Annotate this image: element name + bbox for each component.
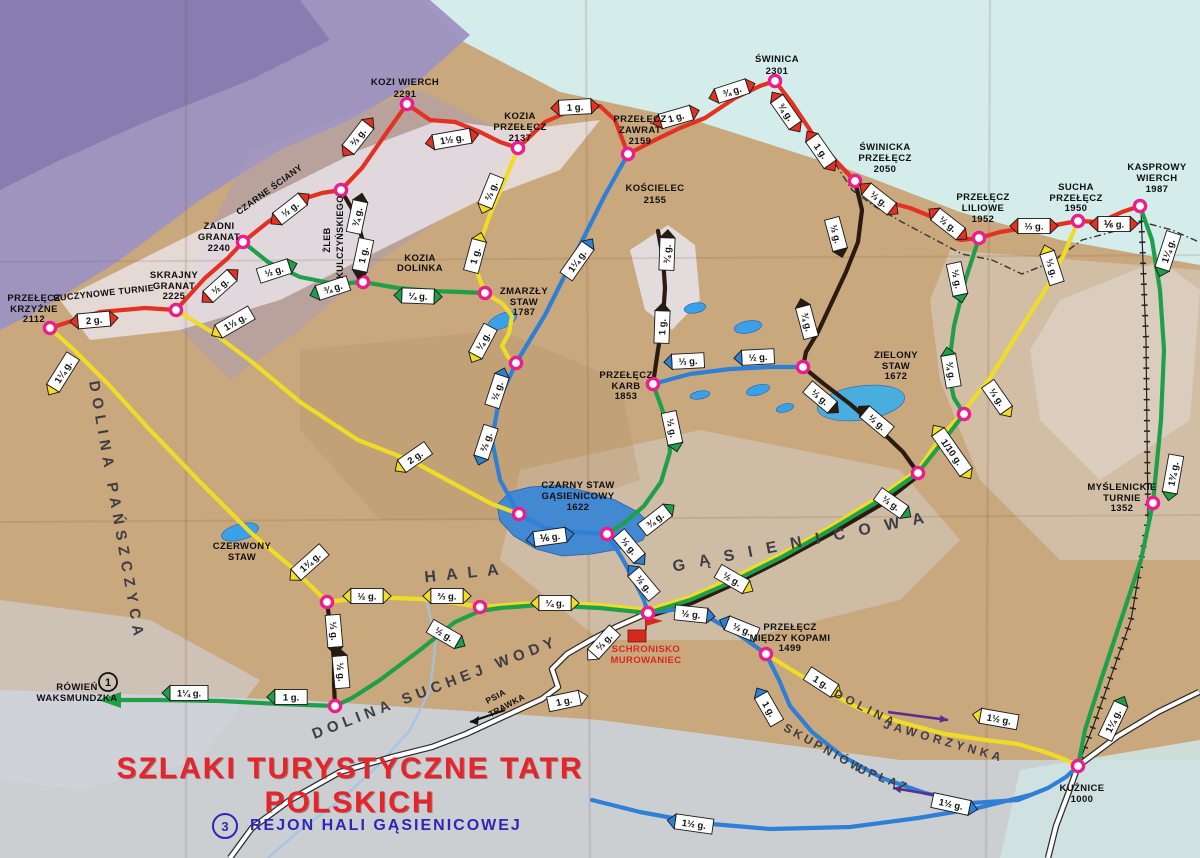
place-label: PRZEŁĘCZ (599, 370, 652, 381)
place-label: 2137 (509, 133, 532, 144)
trail-junction-node (1072, 760, 1083, 771)
marker-time-label: ¾ g. (662, 244, 674, 263)
place-label: 1952 (972, 214, 995, 225)
place-label: WIERCH (1137, 173, 1178, 184)
trail-junction-node (1147, 497, 1158, 508)
place-label: CZERWONY (213, 541, 272, 552)
place-label: STAW (228, 552, 256, 563)
place-label: PRZEŁĘCZ (858, 153, 911, 164)
place-label: 2159 (629, 136, 652, 147)
map-canvas: 2 g.½ g.½ g.⅔ g.1½ g.1 g.1 g.¾ g.¾ g.1 g… (0, 0, 1200, 858)
trail-junction-node (44, 322, 55, 333)
place-label: 2240 (208, 243, 231, 254)
trail-junction-node (760, 648, 771, 659)
marker-time-label: ½ g. (681, 609, 701, 622)
place-label: 2225 (163, 291, 186, 302)
place-label: 2301 (766, 66, 789, 77)
marker-time-label: ⅙ g. (1104, 220, 1124, 231)
marker-time-label: 1 g. (657, 319, 669, 336)
trail-junction-node (335, 184, 346, 195)
trail-junction-node (170, 304, 181, 315)
place-label: MUROWANIEC (610, 655, 681, 666)
place-label: PRZEŁĘCZ (763, 622, 816, 633)
trail-junction-node (512, 142, 523, 153)
marker-time-label: 2 g. (85, 315, 102, 327)
trail-junction-node (479, 287, 490, 298)
time-marker: ⅙ g. (1090, 217, 1138, 232)
place-label: ŚWINICKA (859, 141, 910, 153)
trail-junction-node (642, 607, 653, 618)
place-label: 1987 (1146, 184, 1169, 195)
place-label: ZAWRAT (619, 125, 661, 136)
marker-time-label: ¼ g. (408, 291, 427, 303)
place-label: ZIELONY (874, 350, 918, 361)
marker-time-label: 1¼ g. (177, 689, 201, 700)
trail-junction-node (958, 408, 969, 419)
place-label: SCHRONISKO (612, 644, 680, 655)
trail-junction-node (912, 467, 923, 478)
marker-time-label: 1 g. (567, 102, 584, 114)
place-label: WAKSMUNDZKA (37, 693, 118, 704)
trail-junction-node (401, 98, 412, 109)
marker-time-label: ⅓ g. (327, 621, 340, 641)
trail-junction-node (849, 175, 860, 186)
time-marker: 1¼ g. (162, 686, 208, 701)
time-marker: 1 g. (267, 690, 307, 705)
place-label: SKRAJNY (150, 270, 198, 281)
marker-time-label: ⅔ g. (437, 592, 456, 603)
time-marker: ½ g. (343, 589, 391, 604)
marker-time-label: ½ g. (334, 662, 347, 682)
place-label: 1622 (567, 502, 590, 513)
place-label: 1787 (513, 307, 536, 318)
place-label: 2050 (874, 164, 897, 175)
place-label: GRANAT (198, 232, 240, 243)
place-label: ŻLEB (322, 227, 332, 252)
place-label: MYŚLENICKIE (1087, 481, 1156, 493)
time-marker: ¼ g. (394, 288, 443, 305)
trail-junction-node (973, 232, 984, 243)
trail-junction-node (321, 596, 332, 607)
place-label: GĄSIENICOWY (541, 491, 614, 502)
trail-junction-node (513, 508, 524, 519)
time-marker: 1 g. (550, 98, 599, 116)
mountain-hut-icon (628, 630, 646, 642)
time-marker: ¼ g. (531, 596, 579, 611)
time-marker: ¾ g. (659, 230, 675, 271)
place-label: SUCHA (1058, 182, 1094, 193)
place-label: RÓWIEŃ (56, 681, 97, 693)
time-marker: ⅓ g. (1010, 219, 1058, 234)
place-label: 2291 (394, 89, 417, 100)
place-label: PRZEŁĘCZ (493, 122, 546, 133)
place-label: PRZEŁĘCZ (613, 114, 666, 125)
trail-junction-node (797, 361, 808, 372)
trail-junction-node (474, 601, 485, 612)
place-label: 1672 (885, 371, 908, 382)
place-label: KOZIA (504, 111, 536, 122)
place-label: ZADNI (203, 221, 234, 232)
place-label: KOŚCIELEC (625, 182, 684, 194)
tatra-trail-map: 2 g.½ g.½ g.⅔ g.1½ g.1 g.1 g.¾ g.¾ g.1 g… (0, 0, 1200, 858)
place-label: CZARNY STAW (541, 480, 614, 491)
place-label: 2112 (23, 314, 45, 325)
place-label: KULCZYŃSKIEGO (335, 195, 345, 278)
place-label: 1950 (1065, 203, 1088, 214)
time-marker: 1 g. (654, 303, 670, 344)
marker-time-label: ⅓ g. (1024, 222, 1043, 233)
place-label: 1000 (1071, 794, 1094, 805)
place-label: 2155 (644, 195, 667, 206)
place-label: 1352 (1111, 503, 1134, 514)
trail-junction-node (329, 700, 340, 711)
place-label: KASPROWY (1127, 162, 1186, 173)
marker-time-label: ⅓ g. (678, 356, 698, 368)
trail-junction-node (769, 75, 780, 86)
place-label: 1499 (779, 643, 802, 654)
place-label: DOLINKA (397, 263, 443, 274)
time-marker: ⅔ g. (423, 589, 471, 604)
trail-junction-node (601, 528, 612, 539)
marker-time-label: ½ g. (748, 352, 768, 364)
trail-junction-node (1134, 200, 1145, 211)
place-label: ZMARZŁY (500, 286, 548, 297)
circled-number-label: 1 (105, 677, 111, 689)
place-label: KOZI WIERCH (371, 77, 439, 88)
marker-time-label: ½ g. (357, 592, 376, 603)
place-label: 1853 (615, 391, 638, 402)
trail-junction-node (622, 148, 633, 159)
place-label: ŚWINICA (755, 53, 799, 65)
trail-junction-node (1072, 215, 1083, 226)
place-label: KUŹNICE (1059, 783, 1104, 794)
marker-time-label: ¼ g. (545, 599, 564, 610)
place-label: PRZEŁĘCZ (956, 192, 1009, 203)
marker-time-label: 1 g. (283, 693, 299, 704)
place-label: LILIOWE (962, 203, 1004, 214)
trail-junction-node (510, 357, 521, 368)
